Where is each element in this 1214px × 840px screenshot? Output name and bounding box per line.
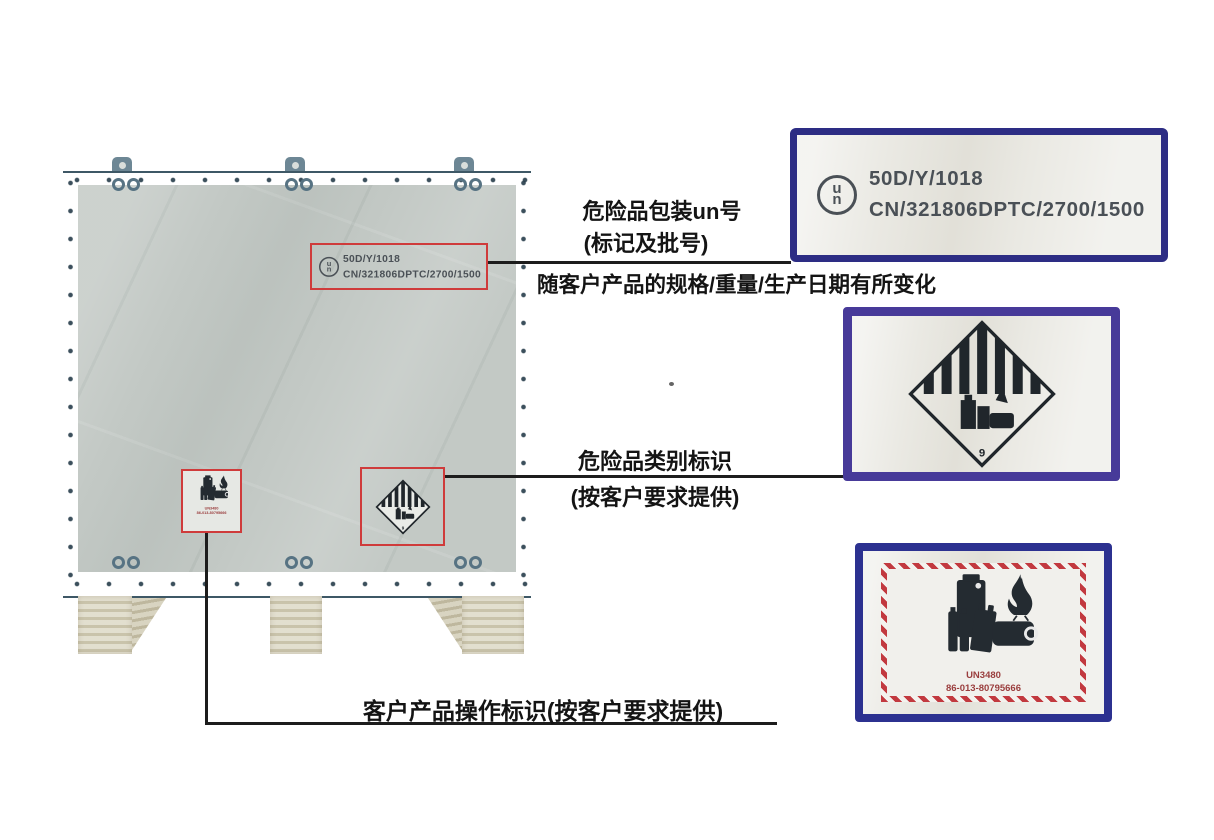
crate-top-clip-tab — [112, 157, 132, 173]
un-symbol-u: u — [327, 261, 332, 266]
crate-clip-rings — [285, 178, 313, 191]
crate-clip-rings — [112, 178, 140, 191]
clip-ring-icon — [127, 556, 140, 569]
battery-un-number: UN3480 — [946, 670, 1021, 683]
un-symbol-n: n — [327, 267, 332, 272]
clip-ring-icon — [300, 556, 313, 569]
crate-top-clip-tab — [454, 157, 474, 173]
crate-un-mark-text: 50D/Y/1018 CN/321806DPTC/2700/1500 — [343, 251, 481, 282]
crate-un-mark-highlight: u n 50D/Y/1018 CN/321806DPTC/2700/1500 — [310, 243, 488, 290]
connector-line-battery-vertical — [205, 533, 208, 725]
clip-hole — [119, 162, 126, 169]
pallet-foot-left — [78, 596, 132, 654]
diagram-canvas: u n 50D/Y/1018 CN/321806DPTC/2700/1500 — [0, 0, 1214, 840]
pallet-wedge-left — [132, 598, 166, 650]
clip-ring-icon — [454, 556, 467, 569]
clip-ring-icon — [112, 556, 125, 569]
clip-hole — [461, 162, 468, 169]
clip-ring-icon — [454, 178, 467, 191]
clip-hole — [292, 162, 299, 169]
lithium-battery-graphic — [904, 570, 1064, 670]
clip-ring-icon — [285, 556, 298, 569]
crate-clip-rings — [454, 556, 482, 569]
crate-class9-label-highlight: 9 — [360, 467, 445, 546]
connector-line-un — [488, 261, 791, 264]
annotation-packaging-line1: 危险品包装un号 — [532, 194, 792, 226]
crate-steel-edge-top — [63, 171, 531, 187]
crate-steel-edge-left — [63, 171, 78, 596]
annotation-category-line1: 危险品类别标识 — [535, 444, 775, 476]
un-label-text: 50D/Y/1018 CN/321806DPTC/2700/1500 — [869, 164, 1145, 226]
un-code-line2: CN/321806DPTC/2700/1500 — [343, 267, 481, 282]
class9-diamond-icon: 9 — [375, 479, 431, 535]
crate-plywood-panel — [78, 185, 516, 572]
clip-ring-icon — [112, 178, 125, 191]
clip-ring-icon — [469, 178, 482, 191]
crate-bottom-clip-tab — [289, 596, 309, 612]
annotation-category-line2: (按客户要求提供) — [535, 480, 775, 512]
clip-ring-icon — [300, 178, 313, 191]
flame-icon — [219, 475, 227, 488]
dust-speck — [669, 382, 674, 386]
enlarged-un-label: u n 50D/Y/1018 CN/321806DPTC/2700/1500 — [790, 128, 1168, 262]
annotation-packaging-line3: 随客户产品的规格/重量/生产日期有所变化 — [537, 268, 936, 299]
pallet-foot-right — [462, 596, 524, 654]
clip-ring-icon — [127, 178, 140, 191]
un-code-line1: 50D/Y/1018 — [869, 164, 1145, 195]
battery-label-text: UN3480 86-013-80795666 — [946, 670, 1021, 696]
crate-clip-rings — [454, 178, 482, 191]
clip-hole — [296, 601, 303, 608]
un-packaging-symbol: u n — [319, 257, 339, 277]
pallet-wedge-right — [428, 598, 462, 650]
pallet-foot-middle — [270, 596, 322, 654]
enlarged-class9-label: 9 — [843, 307, 1120, 481]
un-code-line1: 50D/Y/1018 — [343, 251, 481, 266]
crate-battery-label-highlight: UN3480 86-013-80795666 — [181, 469, 242, 533]
crate-battery-label-text: UN3480 86-013-80795666 — [197, 506, 227, 515]
class9-number: 9 — [978, 447, 984, 459]
un-code-line2: CN/321806DPTC/2700/1500 — [869, 195, 1145, 226]
battery-label-body: UN3480 86-013-80795666 — [887, 569, 1080, 696]
crate-steel-edge-bottom — [63, 572, 531, 598]
lithium-battery-graphic — [189, 474, 235, 506]
battery-contact: 86-013-80795666 — [946, 683, 1021, 696]
annotation-handling-line1: 客户产品操作标识(按客户要求提供) — [318, 692, 768, 726]
enlarged-battery-label: UN3480 86-013-80795666 — [855, 543, 1112, 722]
clip-ring-icon — [469, 556, 482, 569]
annotation-packaging-line2: (标记及批号) — [516, 226, 776, 258]
class9-diamond-icon: 9 — [906, 318, 1058, 470]
crate-top-clip-tab — [285, 157, 305, 173]
battery-group-icon — [395, 504, 413, 519]
class9-number: 9 — [401, 525, 404, 530]
un-packaging-symbol: u n — [817, 175, 857, 215]
clip-ring-icon — [285, 178, 298, 191]
un-symbol-n: n — [832, 195, 841, 206]
crate-clip-rings — [112, 556, 140, 569]
crate-clip-rings — [285, 556, 313, 569]
flame-icon — [1007, 574, 1032, 615]
crate-un-mark: u n 50D/Y/1018 CN/321806DPTC/2700/1500 — [319, 251, 481, 282]
battery-label-hatched-border: UN3480 86-013-80795666 — [881, 563, 1086, 702]
